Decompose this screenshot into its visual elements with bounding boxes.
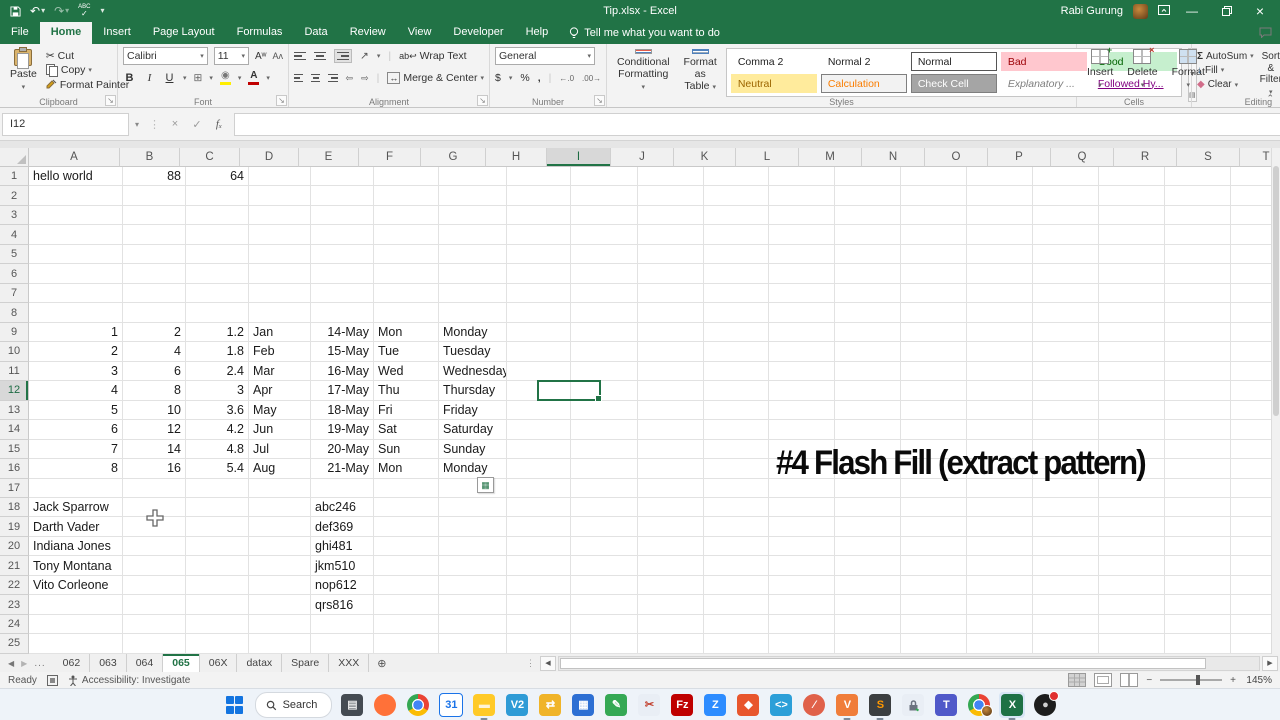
cell-C10[interactable]: 1.8 (186, 342, 249, 361)
cell-R5[interactable] (1165, 245, 1231, 264)
row-header-9[interactable]: 9 (0, 323, 29, 342)
cell-F20[interactable] (374, 537, 439, 556)
cell-R8[interactable] (1165, 303, 1231, 322)
obs-icon[interactable]: ● (1032, 692, 1058, 718)
cell-O6[interactable] (967, 264, 1033, 283)
row-header-10[interactable]: 10 (0, 342, 29, 361)
cell-E15[interactable]: 20-May (311, 440, 374, 459)
cell-P13[interactable] (1033, 401, 1099, 420)
cell-F1[interactable] (374, 167, 439, 186)
cell-L8[interactable] (769, 303, 835, 322)
cell-B24[interactable] (123, 615, 186, 634)
editor-icon[interactable]: ✎ (603, 692, 629, 718)
cell-S6[interactable] (1231, 264, 1272, 283)
qat-customize-icon[interactable]: ▾ (100, 7, 105, 15)
cell-H11[interactable] (507, 362, 571, 381)
cell-E25[interactable] (311, 634, 374, 653)
horizontal-scrollbar[interactable] (558, 656, 1260, 671)
spelling-icon[interactable]: ABC✓ (78, 4, 90, 18)
cell-D10[interactable]: Feb (249, 342, 311, 361)
cell-style-explanatory-[interactable]: Explanatory ... (1001, 74, 1087, 93)
sheet-tab-xxx[interactable]: XXX (329, 654, 369, 672)
cell-Q7[interactable] (1099, 284, 1165, 303)
user-avatar[interactable] (1133, 4, 1148, 19)
cell-J1[interactable] (638, 167, 704, 186)
cell-B2[interactable] (123, 186, 186, 205)
cell-I25[interactable] (571, 634, 638, 653)
cell-C11[interactable]: 2.4 (186, 362, 249, 381)
confirm-entry-icon[interactable]: ✓ (186, 118, 208, 131)
cell-H18[interactable] (507, 498, 571, 517)
align-right-icon[interactable] (328, 74, 337, 83)
cell-B12[interactable]: 8 (123, 381, 186, 400)
cell-O23[interactable] (967, 595, 1033, 614)
cell-D8[interactable] (249, 303, 311, 322)
tab-split-handle[interactable]: ⋮ (523, 658, 538, 669)
cell-B22[interactable] (123, 576, 186, 595)
cell-K16[interactable] (704, 459, 769, 478)
cell-style-check-cell[interactable]: Check Cell (911, 74, 997, 93)
cell-J25[interactable] (638, 634, 704, 653)
vertical-scrollbar[interactable] (1271, 148, 1280, 654)
cell-K14[interactable] (704, 420, 769, 439)
ribbon-display-options-icon[interactable] (1158, 5, 1170, 18)
cell-A12[interactable]: 4 (29, 381, 123, 400)
cell-K24[interactable] (704, 615, 769, 634)
sort-filter-button[interactable]: AZ Sort &Filter ▾ (1258, 47, 1280, 94)
cell-M23[interactable] (835, 595, 901, 614)
cell-I10[interactable] (571, 342, 638, 361)
cell-E11[interactable]: 16-May (311, 362, 374, 381)
cell-O3[interactable] (967, 206, 1033, 225)
bold-button[interactable]: B (123, 72, 136, 84)
cell-P19[interactable] (1033, 517, 1099, 536)
cell-P22[interactable] (1033, 576, 1099, 595)
row-header-17[interactable]: 17 (0, 479, 29, 498)
row-header-12[interactable]: 12 (0, 381, 29, 400)
cell-K2[interactable] (704, 186, 769, 205)
cell-L24[interactable] (769, 615, 835, 634)
comment-icon[interactable] (1259, 25, 1272, 43)
cell-K22[interactable] (704, 576, 769, 595)
zoom-level[interactable]: 145% (1244, 675, 1272, 686)
cell-O19[interactable] (967, 517, 1033, 536)
row-header-24[interactable]: 24 (0, 615, 29, 634)
cell-F18[interactable] (374, 498, 439, 517)
cell-D23[interactable] (249, 595, 311, 614)
cell-style-calculation[interactable]: Calculation (821, 74, 907, 93)
cell-C12[interactable]: 3 (186, 381, 249, 400)
cell-B17[interactable] (123, 479, 186, 498)
cell-C6[interactable] (186, 264, 249, 283)
cell-G25[interactable] (439, 634, 507, 653)
cell-K21[interactable] (704, 556, 769, 575)
cell-J2[interactable] (638, 186, 704, 205)
cell-S2[interactable] (1231, 186, 1272, 205)
grow-font-icon[interactable]: Aʷ (255, 51, 266, 62)
cell-N10[interactable] (901, 342, 967, 361)
row-header-4[interactable]: 4 (0, 225, 29, 244)
cell-M6[interactable] (835, 264, 901, 283)
ribbon-tab-file[interactable]: File (0, 22, 40, 44)
cell-D17[interactable] (249, 479, 311, 498)
cell-S25[interactable] (1231, 634, 1272, 653)
cell-K6[interactable] (704, 264, 769, 283)
cell-C24[interactable] (186, 615, 249, 634)
cell-Q10[interactable] (1099, 342, 1165, 361)
cell-O11[interactable] (967, 362, 1033, 381)
cell-H4[interactable] (507, 225, 571, 244)
conditional-formatting-button[interactable]: ConditionalFormatting ▾ (612, 47, 675, 94)
row-header-16[interactable]: 16 (0, 459, 29, 478)
cell-D4[interactable] (249, 225, 311, 244)
cell-L25[interactable] (769, 634, 835, 653)
cell-H14[interactable] (507, 420, 571, 439)
ribbon-tab-insert[interactable]: Insert (92, 22, 142, 44)
cell-G17[interactable] (439, 479, 507, 498)
cell-F21[interactable] (374, 556, 439, 575)
cell-H2[interactable] (507, 186, 571, 205)
cell-D7[interactable] (249, 284, 311, 303)
decrease-indent-icon[interactable]: ⇦ (346, 73, 354, 84)
column-header-A[interactable]: A (29, 148, 120, 167)
cell-J23[interactable] (638, 595, 704, 614)
cell-D18[interactable] (249, 498, 311, 517)
cell-A2[interactable] (29, 186, 123, 205)
cell-K10[interactable] (704, 342, 769, 361)
cell-F6[interactable] (374, 264, 439, 283)
row-header-5[interactable]: 5 (0, 245, 29, 264)
cell-H25[interactable] (507, 634, 571, 653)
cell-C7[interactable] (186, 284, 249, 303)
cell-R13[interactable] (1165, 401, 1231, 420)
cell-M13[interactable] (835, 401, 901, 420)
cell-J20[interactable] (638, 537, 704, 556)
cell-D24[interactable] (249, 615, 311, 634)
underline-button[interactable]: U (163, 72, 176, 84)
cell-R9[interactable] (1165, 323, 1231, 342)
column-header-D[interactable]: D (240, 148, 299, 167)
cell-H15[interactable] (507, 440, 571, 459)
cell-P14[interactable] (1033, 420, 1099, 439)
ribbon-tab-home[interactable]: Home (40, 22, 93, 44)
cell-B7[interactable] (123, 284, 186, 303)
vscode-icon[interactable]: <> (768, 692, 794, 718)
cell-J12[interactable] (638, 381, 704, 400)
cell-F4[interactable] (374, 225, 439, 244)
cell-L7[interactable] (769, 284, 835, 303)
cell-A11[interactable]: 3 (29, 362, 123, 381)
cell-F10[interactable]: Tue (374, 342, 439, 361)
cell-F12[interactable]: Thu (374, 381, 439, 400)
cell-C15[interactable]: 4.8 (186, 440, 249, 459)
cell-P9[interactable] (1033, 323, 1099, 342)
cell-R22[interactable] (1165, 576, 1231, 595)
blocked-app-icon[interactable]: ⁄ (801, 692, 827, 718)
cell-D14[interactable]: Jun (249, 420, 311, 439)
tell-me-box[interactable]: Tell me what you want to do (559, 22, 730, 44)
cell-L11[interactable] (769, 362, 835, 381)
cell-C14[interactable]: 4.2 (186, 420, 249, 439)
cell-L12[interactable] (769, 381, 835, 400)
cell-K1[interactable] (704, 167, 769, 186)
row-header-3[interactable]: 3 (0, 206, 29, 225)
undo-icon[interactable]: ↶▾ (30, 5, 45, 17)
cell-A9[interactable]: 1 (29, 323, 123, 342)
cell-R18[interactable] (1165, 498, 1231, 517)
cell-style-neutral[interactable]: Neutral (731, 74, 817, 93)
row-header-23[interactable]: 23 (0, 595, 29, 614)
cell-P18[interactable] (1033, 498, 1099, 517)
number-format-select[interactable]: General▾ (495, 47, 595, 65)
cell-J13[interactable] (638, 401, 704, 420)
cell-F2[interactable] (374, 186, 439, 205)
cell-E8[interactable] (311, 303, 374, 322)
cell-N18[interactable] (901, 498, 967, 517)
column-header-R[interactable]: R (1114, 148, 1177, 167)
cell-style-comma-2[interactable]: Comma 2 (731, 52, 817, 71)
cell-A15[interactable]: 7 (29, 440, 123, 459)
increase-decimal-icon[interactable]: ←.0 (559, 74, 574, 83)
cell-S19[interactable] (1231, 517, 1272, 536)
vertical-scrollbar-thumb[interactable] (1273, 166, 1279, 416)
cell-G20[interactable] (439, 537, 507, 556)
cell-E3[interactable] (311, 206, 374, 225)
cell-G4[interactable] (439, 225, 507, 244)
cell-P2[interactable] (1033, 186, 1099, 205)
cell-P3[interactable] (1033, 206, 1099, 225)
cell-H20[interactable] (507, 537, 571, 556)
cell-J3[interactable] (638, 206, 704, 225)
cell-S21[interactable] (1231, 556, 1272, 575)
cell-C22[interactable] (186, 576, 249, 595)
cell-Q13[interactable] (1099, 401, 1165, 420)
cell-R25[interactable] (1165, 634, 1231, 653)
cell-A24[interactable] (29, 615, 123, 634)
redo-icon[interactable]: ↷▾ (54, 5, 69, 17)
font-size-select[interactable]: 11▾ (214, 47, 249, 65)
cell-S12[interactable] (1231, 381, 1272, 400)
cell-Q21[interactable] (1099, 556, 1165, 575)
align-left-icon[interactable] (294, 74, 303, 83)
cell-S15[interactable] (1231, 440, 1272, 459)
cell-M18[interactable] (835, 498, 901, 517)
cell-E18[interactable]: abc246 (311, 498, 374, 517)
cell-G14[interactable]: Saturday (439, 420, 507, 439)
cell-P21[interactable] (1033, 556, 1099, 575)
cell-E7[interactable] (311, 284, 374, 303)
cell-Q23[interactable] (1099, 595, 1165, 614)
flash-fill-options-button[interactable]: ▦ (477, 477, 494, 493)
cell-B5[interactable] (123, 245, 186, 264)
cell-H7[interactable] (507, 284, 571, 303)
cell-F16[interactable]: Mon (374, 459, 439, 478)
cell-E20[interactable]: ghi481 (311, 537, 374, 556)
chrome-icon[interactable] (405, 692, 431, 718)
cell-D20[interactable] (249, 537, 311, 556)
align-middle-icon[interactable] (314, 52, 326, 61)
cell-H6[interactable] (507, 264, 571, 283)
cell-K3[interactable] (704, 206, 769, 225)
cell-E6[interactable] (311, 264, 374, 283)
cell-A20[interactable]: Indiana Jones (29, 537, 123, 556)
cell-Q18[interactable] (1099, 498, 1165, 517)
cell-A5[interactable] (29, 245, 123, 264)
cell-H19[interactable] (507, 517, 571, 536)
cell-I16[interactable] (571, 459, 638, 478)
cell-G8[interactable] (439, 303, 507, 322)
cell-P8[interactable] (1033, 303, 1099, 322)
cell-K25[interactable] (704, 634, 769, 653)
sheet-tab-062[interactable]: 062 (54, 654, 91, 672)
cell-P23[interactable] (1033, 595, 1099, 614)
cell-E10[interactable]: 15-May (311, 342, 374, 361)
cell-O7[interactable] (967, 284, 1033, 303)
cell-S8[interactable] (1231, 303, 1272, 322)
cell-G12[interactable]: Thursday (439, 381, 507, 400)
cell-F13[interactable]: Fri (374, 401, 439, 420)
cell-B15[interactable]: 14 (123, 440, 186, 459)
cell-N14[interactable] (901, 420, 967, 439)
column-header-T[interactable]: T (1240, 148, 1272, 167)
cell-C8[interactable] (186, 303, 249, 322)
cell-L18[interactable] (769, 498, 835, 517)
vpn-lock-icon[interactable] (900, 692, 926, 718)
cell-S3[interactable] (1231, 206, 1272, 225)
cell-E13[interactable]: 18-May (311, 401, 374, 420)
cell-F19[interactable] (374, 517, 439, 536)
cell-G13[interactable]: Friday (439, 401, 507, 420)
cell-B1[interactable]: 88 (123, 167, 186, 186)
cell-A14[interactable]: 6 (29, 420, 123, 439)
cell-K11[interactable] (704, 362, 769, 381)
cell-D2[interactable] (249, 186, 311, 205)
cell-J21[interactable] (638, 556, 704, 575)
cell-R1[interactable] (1165, 167, 1231, 186)
snipping-tool-icon[interactable]: ✂ (636, 692, 662, 718)
cell-C5[interactable] (186, 245, 249, 264)
align-top-icon[interactable] (294, 52, 306, 61)
merge-center-button[interactable]: ↔ Merge & Center ▾ (387, 71, 484, 86)
cell-M20[interactable] (835, 537, 901, 556)
zoom-in-icon[interactable]: + (1230, 675, 1236, 686)
cell-F25[interactable] (374, 634, 439, 653)
cell-E22[interactable]: nop612 (311, 576, 374, 595)
cell-L1[interactable] (769, 167, 835, 186)
cell-N1[interactable] (901, 167, 967, 186)
column-header-L[interactable]: L (736, 148, 799, 167)
cell-F11[interactable]: Wed (374, 362, 439, 381)
sheet-tab-065[interactable]: 065 (163, 654, 200, 672)
cell-G21[interactable] (439, 556, 507, 575)
cell-E21[interactable]: jkm510 (311, 556, 374, 575)
clear-button[interactable]: ◆ Clear ▾ (1197, 78, 1254, 92)
column-header-H[interactable]: H (486, 148, 547, 167)
cell-R14[interactable] (1165, 420, 1231, 439)
cell-J14[interactable] (638, 420, 704, 439)
cell-J22[interactable] (638, 576, 704, 595)
column-header-B[interactable]: B (120, 148, 180, 167)
cell-B21[interactable] (123, 556, 186, 575)
cell-B13[interactable]: 10 (123, 401, 186, 420)
cell-B11[interactable]: 6 (123, 362, 186, 381)
cell-G2[interactable] (439, 186, 507, 205)
decrease-decimal-icon[interactable]: .00→ (582, 74, 601, 83)
cell-S20[interactable] (1231, 537, 1272, 556)
row-header-21[interactable]: 21 (0, 556, 29, 575)
cell-N12[interactable] (901, 381, 967, 400)
sheet-tab-064[interactable]: 064 (127, 654, 164, 672)
cell-C1[interactable]: 64 (186, 167, 249, 186)
cell-A13[interactable]: 5 (29, 401, 123, 420)
cell-C2[interactable] (186, 186, 249, 205)
cell-H1[interactable] (507, 167, 571, 186)
row-header-20[interactable]: 20 (0, 537, 29, 556)
cell-E5[interactable] (311, 245, 374, 264)
cell-J6[interactable] (638, 264, 704, 283)
insert-function-icon[interactable]: fₓ (208, 118, 230, 130)
cell-Q8[interactable] (1099, 303, 1165, 322)
cell-N3[interactable] (901, 206, 967, 225)
hscroll-right-icon[interactable]: ▶ (1262, 656, 1278, 671)
sheet-tab-063[interactable]: 063 (90, 654, 127, 672)
cell-P12[interactable] (1033, 381, 1099, 400)
cell-L2[interactable] (769, 186, 835, 205)
cell-I19[interactable] (571, 517, 638, 536)
cell-H3[interactable] (507, 206, 571, 225)
cell-M24[interactable] (835, 615, 901, 634)
increase-indent-icon[interactable]: ⇨ (361, 73, 369, 84)
fill-color-icon[interactable]: ◉ (220, 71, 231, 85)
select-all-corner[interactable] (0, 148, 29, 167)
format-as-table-button[interactable]: Format asTable ▾ (679, 47, 722, 94)
cell-E4[interactable] (311, 225, 374, 244)
column-header-Q[interactable]: Q (1051, 148, 1114, 167)
cell-O2[interactable] (967, 186, 1033, 205)
cell-F9[interactable]: Mon (374, 323, 439, 342)
cell-R24[interactable] (1165, 615, 1231, 634)
cell-A10[interactable]: 2 (29, 342, 123, 361)
cell-S16[interactable] (1231, 459, 1272, 478)
cell-Q2[interactable] (1099, 186, 1165, 205)
column-header-P[interactable]: P (988, 148, 1051, 167)
cell-style-bad[interactable]: Bad (1001, 52, 1087, 71)
cell-K17[interactable] (704, 479, 769, 498)
row-header-22[interactable]: 22 (0, 576, 29, 595)
cell-S10[interactable] (1231, 342, 1272, 361)
user-name[interactable]: Rabi Gurung (1061, 5, 1123, 17)
sublime-text-icon[interactable]: S (867, 692, 893, 718)
accessibility-status[interactable]: Accessibility: Investigate (68, 675, 190, 686)
minimize-button[interactable]: — (1180, 4, 1204, 18)
cell-C20[interactable] (186, 537, 249, 556)
cell-K9[interactable] (704, 323, 769, 342)
fill-button[interactable]: ↓ Fill ▾ (1197, 63, 1254, 77)
column-header-F[interactable]: F (359, 148, 421, 167)
cell-A18[interactable]: Jack Sparrow (29, 498, 123, 517)
cell-N11[interactable] (901, 362, 967, 381)
cell-E9[interactable]: 14-May (311, 323, 374, 342)
cell-E19[interactable]: def369 (311, 517, 374, 536)
cell-E24[interactable] (311, 615, 374, 634)
new-sheet-button[interactable]: ⊕ (369, 654, 394, 672)
cell-J4[interactable] (638, 225, 704, 244)
column-header-G[interactable]: G (421, 148, 486, 167)
cell-M4[interactable] (835, 225, 901, 244)
column-header-I[interactable]: I (547, 148, 611, 167)
cell-I2[interactable] (571, 186, 638, 205)
cell-E17[interactable] (311, 479, 374, 498)
